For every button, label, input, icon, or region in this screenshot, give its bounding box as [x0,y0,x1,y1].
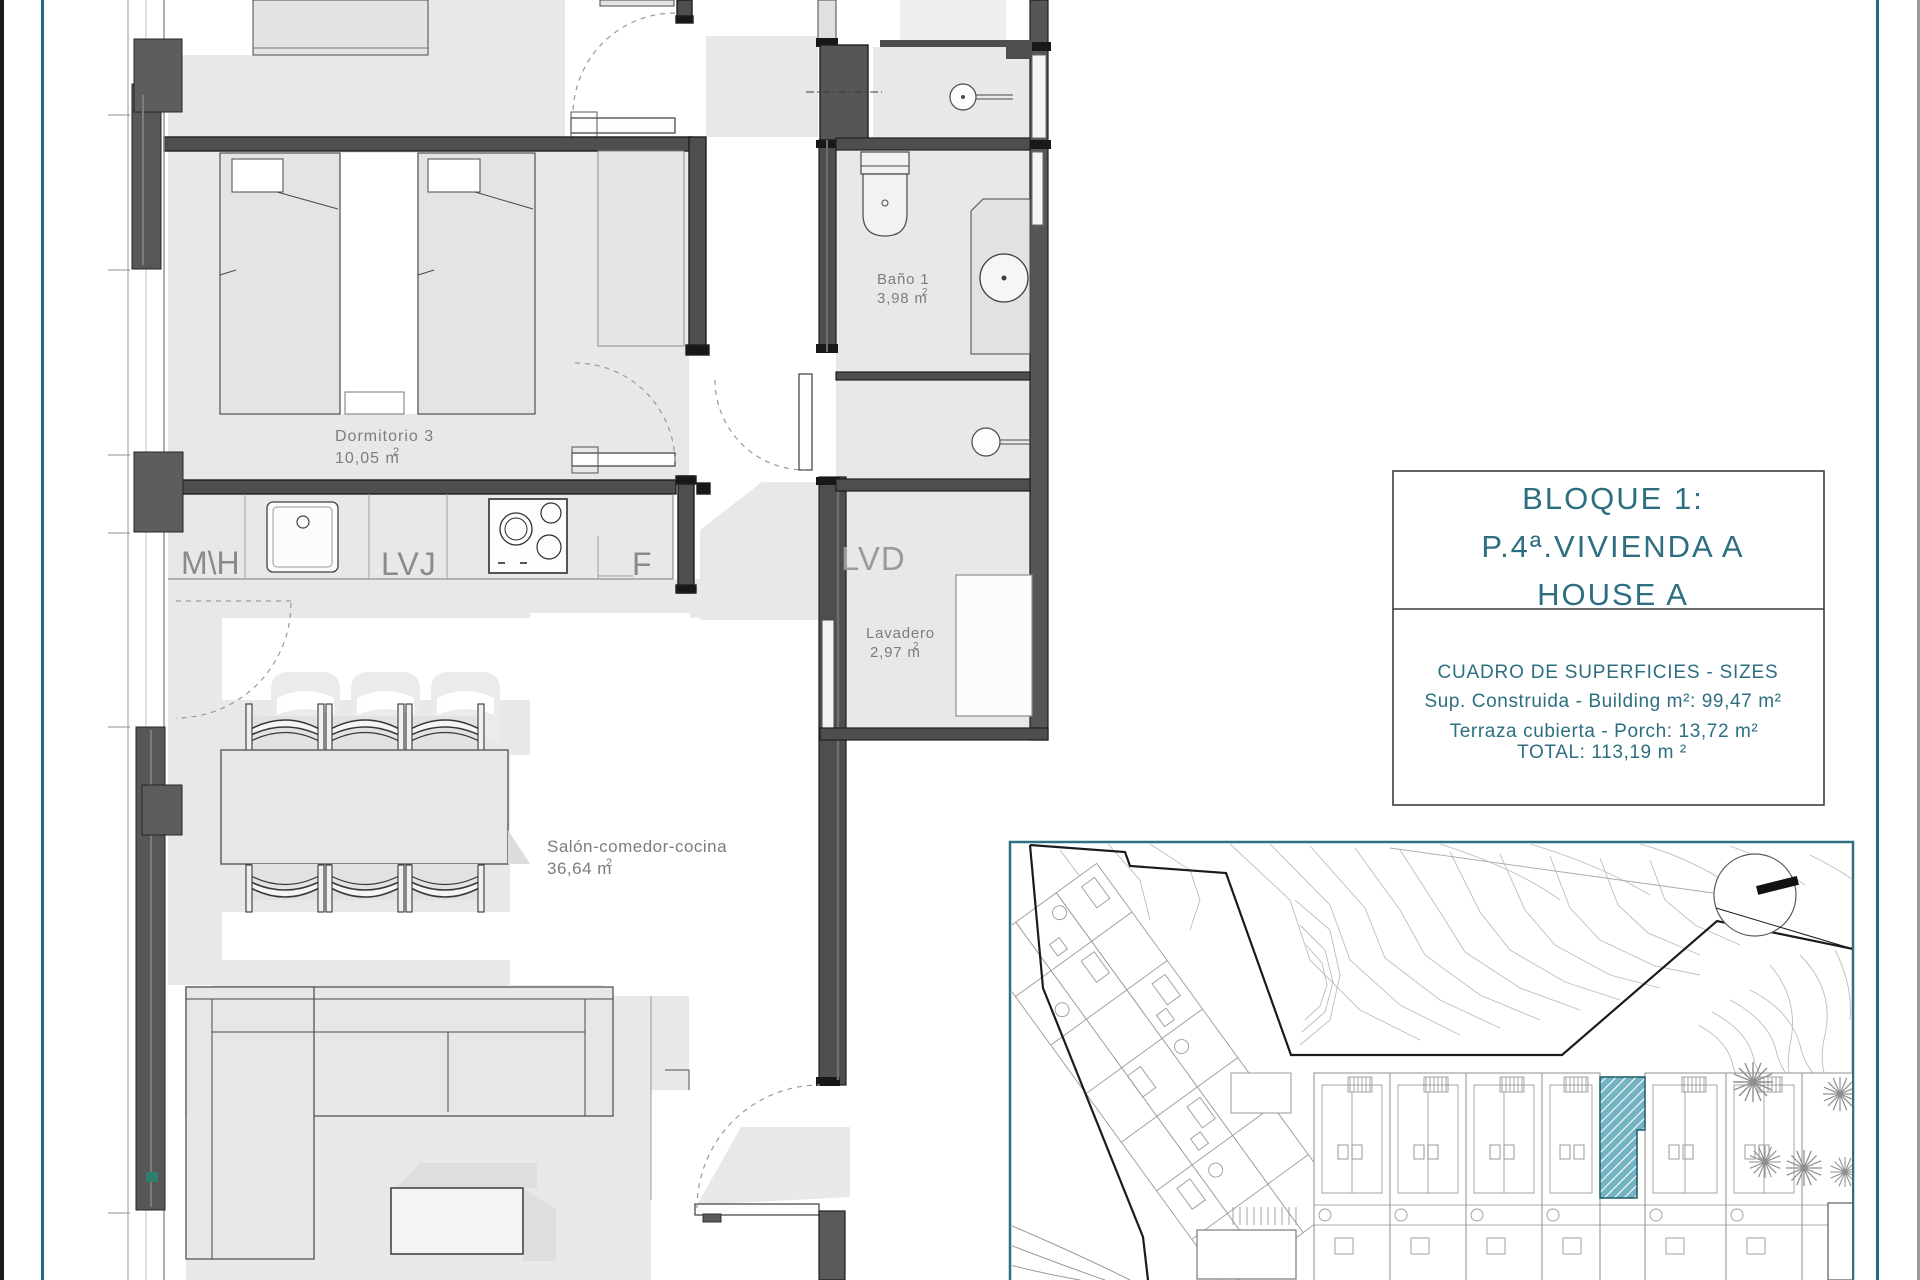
svg-text:LVD: LVD [841,540,906,577]
svg-text:BLOQUE 1:: BLOQUE 1: [1522,481,1704,516]
svg-text:2: 2 [922,287,928,298]
svg-text:Lavadero: Lavadero [866,625,935,642]
svg-text:Salón-comedor-cocina: Salón-comedor-cocina [547,837,727,856]
svg-text:Terraza cubierta - Porch: 13,: Terraza cubierta - Porch: 13,72 m² [1450,721,1759,742]
svg-text:F: F [632,546,652,582]
svg-text:2: 2 [913,641,919,652]
svg-text:2: 2 [393,446,399,458]
svg-text:TOTAL: 113,19 m ²: TOTAL: 113,19 m ² [1517,742,1687,763]
svg-text:M\H: M\H [181,545,240,581]
svg-text:Sup. Construida - Building m: Sup. Construida - Building m²: 99,47 m² [1424,691,1781,712]
svg-text:3,98 m: 3,98 m [877,290,928,307]
svg-text:LVJ: LVJ [381,546,437,582]
svg-text:CUADRO DE SUPERFICIES - SIZES: CUADRO DE SUPERFICIES - SIZES [1438,662,1779,683]
svg-text:Baño 1: Baño 1 [877,271,929,288]
svg-text:HOUSE A: HOUSE A [1537,577,1689,612]
svg-text:P.4ª.VIVIENDA A: P.4ª.VIVIENDA A [1481,529,1744,564]
svg-text:2: 2 [606,857,612,869]
svg-text:Dormitorio 3: Dormitorio 3 [335,428,434,445]
svg-text:10,05 m: 10,05 m [335,450,400,467]
svg-text:36,64 m: 36,64 m [547,859,612,878]
